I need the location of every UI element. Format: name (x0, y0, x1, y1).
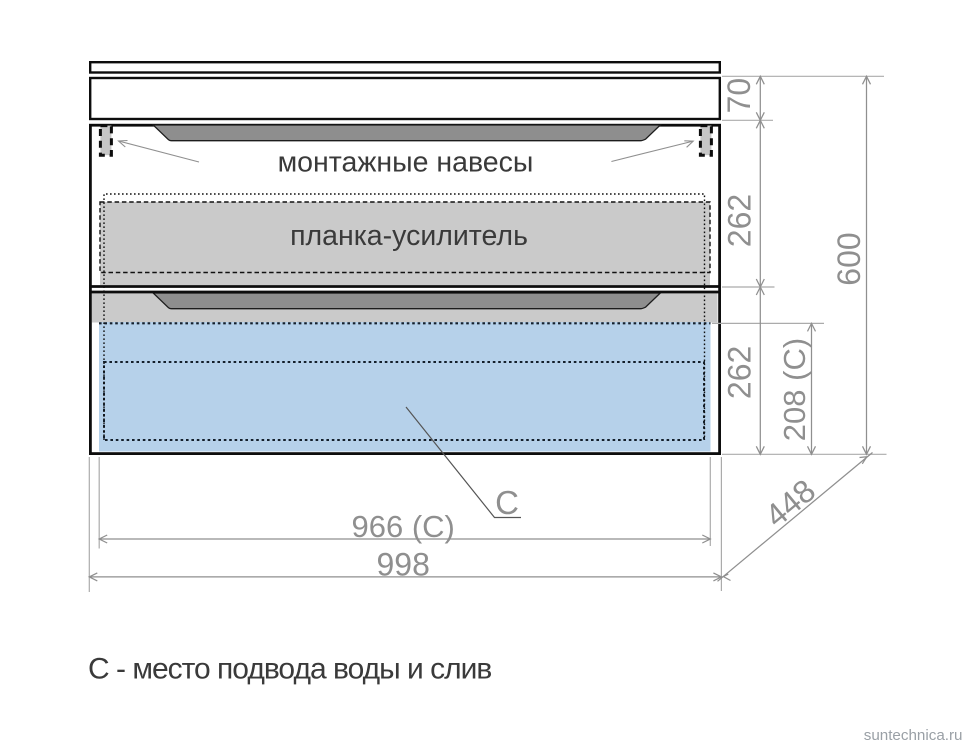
svg-text:448: 448 (758, 472, 822, 534)
svg-text:262: 262 (722, 346, 758, 399)
svg-text:600: 600 (831, 232, 867, 285)
svg-text:C: C (495, 484, 519, 521)
svg-text:998: 998 (377, 546, 430, 582)
svg-text:262: 262 (722, 194, 758, 247)
svg-text:suntechnica.ru: suntechnica.ru (864, 727, 963, 744)
svg-text:планка-усилитель: планка-усилитель (290, 220, 528, 252)
svg-text:монтажные навесы: монтажные навесы (278, 147, 534, 179)
svg-text:С - место подвода воды и слив: С - место подвода воды и слив (88, 653, 491, 686)
svg-text:966 (С): 966 (С) (352, 509, 455, 544)
svg-text:208 (С): 208 (С) (777, 338, 812, 441)
svg-text:70: 70 (721, 78, 757, 114)
